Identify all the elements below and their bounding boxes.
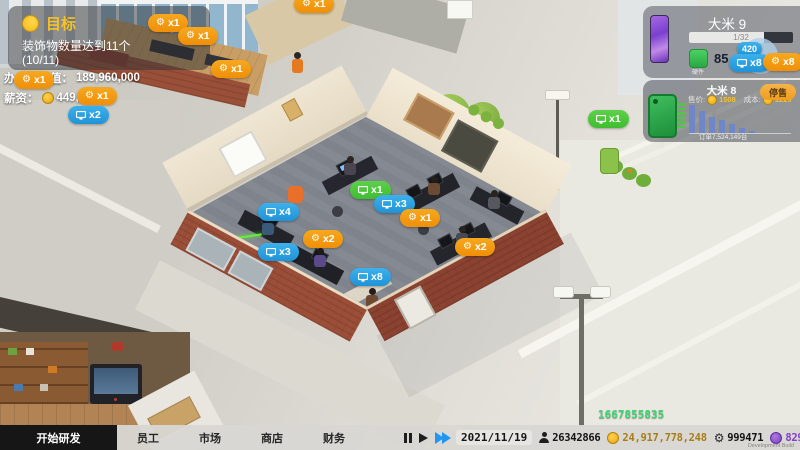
chart-bar bbox=[699, 111, 705, 134]
tab-staff[interactable]: 员工 bbox=[117, 430, 179, 446]
research-progress-bar: 1/32 bbox=[689, 32, 793, 43]
goal-progress: (10/11) bbox=[22, 53, 59, 67]
shelf-item bbox=[8, 348, 17, 355]
goal-title: 目标 bbox=[46, 13, 76, 34]
flower-dot bbox=[628, 169, 632, 173]
street-lamp-head bbox=[545, 90, 570, 100]
dev-watermark: Development Build bbox=[748, 443, 794, 449]
office-chair bbox=[288, 186, 303, 203]
tv bbox=[90, 364, 142, 404]
company-info: 办公室价值： 189,960,000 薪资： 449,221 bbox=[4, 70, 140, 110]
rating-bar bbox=[677, 126, 686, 129]
office-person bbox=[428, 176, 440, 196]
goal-icon bbox=[22, 15, 39, 32]
rating-bar bbox=[677, 112, 686, 115]
person-body bbox=[292, 59, 303, 73]
salary-value: 449,221 bbox=[57, 92, 99, 104]
gear-icon: ⚙ bbox=[714, 431, 724, 445]
cork-board bbox=[403, 93, 455, 140]
rating-bars bbox=[677, 103, 686, 128]
shelf-item bbox=[14, 384, 23, 391]
tv-led bbox=[114, 398, 117, 401]
pause-button[interactable] bbox=[404, 433, 412, 443]
population-counter: 26342866 bbox=[539, 432, 600, 444]
office-person bbox=[314, 248, 326, 268]
salary-label: 薪资： bbox=[4, 90, 39, 106]
hardware-value: 85 bbox=[714, 51, 728, 66]
coin-icon bbox=[707, 95, 717, 105]
premium-counter: 829954 bbox=[770, 432, 800, 444]
red-chair bbox=[112, 342, 123, 351]
progress-text: 1/32 bbox=[689, 33, 793, 42]
stop-sale-button[interactable]: 停售 bbox=[760, 84, 796, 100]
window bbox=[185, 227, 236, 271]
poster bbox=[281, 98, 303, 122]
office-value: 189,960,000 bbox=[76, 72, 140, 84]
rating-bar bbox=[677, 117, 686, 120]
phone-thumbnail bbox=[648, 94, 677, 138]
floating-income-text: 1667855835 bbox=[598, 408, 664, 421]
office-person bbox=[488, 190, 500, 210]
chart-bar bbox=[689, 105, 695, 134]
white-sign bbox=[447, 0, 473, 19]
previous-product-panel: 大米 8 售价: 1508 成本: 1229 订单7,524,149台 停售 bbox=[643, 80, 800, 142]
current-product-panel: 大米 9 1/32 硬件 85 bbox=[643, 6, 800, 78]
play-button[interactable] bbox=[419, 433, 428, 443]
hardware-icon bbox=[689, 49, 708, 68]
money-counter: 24,917,778,248 bbox=[607, 432, 706, 444]
game-date: 2021/11/19 bbox=[456, 430, 532, 445]
phone-camera bbox=[653, 99, 658, 104]
office-chair bbox=[418, 224, 429, 235]
premium-coin-icon bbox=[770, 432, 782, 444]
goal-panel: 目标 装饰物数量达到11个 (10/11) bbox=[8, 6, 210, 70]
street-lamp-head bbox=[553, 286, 574, 298]
office-person bbox=[262, 216, 274, 236]
tab-shop[interactable]: 商店 bbox=[241, 430, 303, 446]
orders-label: 订单7,524,149台 bbox=[699, 131, 747, 141]
coin-icon bbox=[42, 92, 54, 104]
coin-icon bbox=[607, 432, 619, 444]
tab-start-research[interactable]: 开始研发 bbox=[0, 425, 117, 450]
time-controls: 2021/11/19 26342866 24,917,778,248 ⚙ 999… bbox=[404, 425, 800, 450]
office-chair bbox=[332, 206, 343, 217]
users-icon bbox=[539, 432, 549, 443]
worker-person bbox=[292, 52, 304, 74]
tv-screen bbox=[94, 368, 138, 394]
window bbox=[228, 250, 274, 291]
bottom-bar-right: 员工 市场 商店 财务 2021/11/19 26342866 24,917,7… bbox=[117, 425, 800, 450]
product-title: 大米 9 bbox=[667, 13, 787, 33]
office-value-label: 办公室价值： bbox=[4, 70, 73, 86]
goal-description: 装饰物数量达到11个 bbox=[22, 37, 130, 54]
bush bbox=[636, 174, 651, 187]
orders-bar-chart bbox=[689, 104, 755, 133]
office-person bbox=[344, 156, 356, 176]
outdoor-chair bbox=[600, 148, 619, 174]
shelf-item bbox=[40, 384, 48, 391]
person-head bbox=[294, 52, 301, 59]
price-value: 1508 bbox=[719, 95, 736, 104]
hardware-label: 硬件 bbox=[685, 67, 711, 76]
shelf-item bbox=[48, 366, 57, 373]
rating-bar bbox=[677, 121, 686, 124]
bottom-bar: 开始研发 员工 市场 商店 财务 2021/11/19 26342866 24,… bbox=[0, 425, 800, 450]
rating-bar bbox=[677, 103, 686, 106]
game-root: 目标 装饰物数量达到11个 (10/11) 办公室价值： 189,960,000… bbox=[0, 0, 800, 450]
rating-bar bbox=[677, 108, 686, 111]
office-person bbox=[456, 226, 468, 246]
fast-forward-button[interactable] bbox=[435, 432, 449, 444]
street-lamp-pole bbox=[579, 298, 584, 426]
shelf-item bbox=[26, 348, 34, 355]
tab-finance[interactable]: 财务 bbox=[303, 430, 365, 446]
tab-market[interactable]: 市场 bbox=[179, 430, 241, 446]
street-lamp-head bbox=[590, 286, 611, 298]
